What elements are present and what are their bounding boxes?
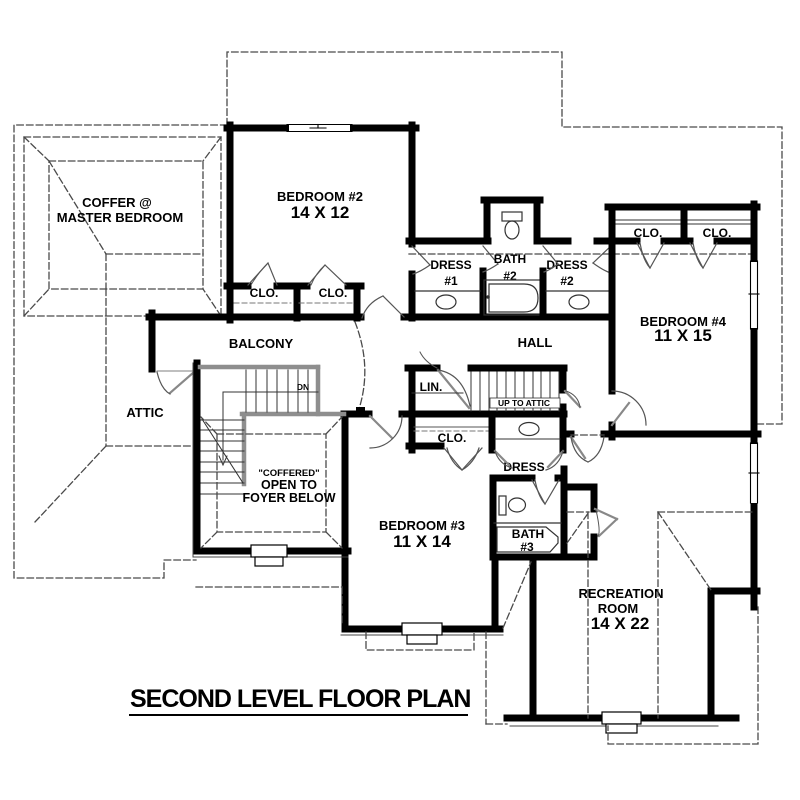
svg-text:CLO.: CLO. [438, 431, 467, 445]
svg-text:OPEN TO: OPEN TO [261, 478, 317, 492]
svg-text:CLO.: CLO. [703, 226, 732, 240]
svg-text:MASTER BEDROOM: MASTER BEDROOM [57, 210, 183, 225]
svg-text:UP TO ATTIC: UP TO ATTIC [498, 398, 550, 408]
svg-text:DRESS: DRESS [546, 258, 587, 272]
svg-text:FOYER BELOW: FOYER BELOW [242, 491, 335, 505]
svg-text:14 X 22: 14 X 22 [591, 614, 650, 633]
svg-text:DRESS: DRESS [430, 258, 471, 272]
svg-text:CLO.: CLO. [319, 286, 348, 300]
svg-text:BEDROOM #2: BEDROOM #2 [277, 189, 363, 204]
svg-text:BALCONY: BALCONY [229, 336, 294, 351]
svg-text:11 X 15: 11 X 15 [654, 326, 712, 345]
svg-text:RECREATION: RECREATION [579, 586, 664, 601]
svg-text:#2: #2 [503, 269, 517, 283]
svg-text:#3: #3 [520, 540, 534, 554]
svg-text:LIN.: LIN. [420, 380, 443, 394]
svg-text:11 X 14: 11 X 14 [393, 532, 451, 551]
svg-text:#2: #2 [560, 274, 574, 288]
svg-text:CLO.: CLO. [634, 226, 663, 240]
svg-text:CLO.: CLO. [250, 286, 279, 300]
svg-text:SECOND LEVEL FLOOR PLAN: SECOND LEVEL FLOOR PLAN [130, 685, 470, 713]
svg-text:BEDROOM #3: BEDROOM #3 [379, 518, 465, 533]
svg-text:#1: #1 [444, 274, 458, 288]
svg-text:DN: DN [297, 382, 309, 392]
svg-text:14 X 12: 14 X 12 [291, 203, 350, 222]
svg-text:BATH: BATH [512, 527, 544, 541]
svg-text:ATTIC: ATTIC [126, 405, 164, 420]
svg-text:COFFER @: COFFER @ [82, 195, 152, 210]
svg-text:HALL: HALL [518, 335, 553, 350]
